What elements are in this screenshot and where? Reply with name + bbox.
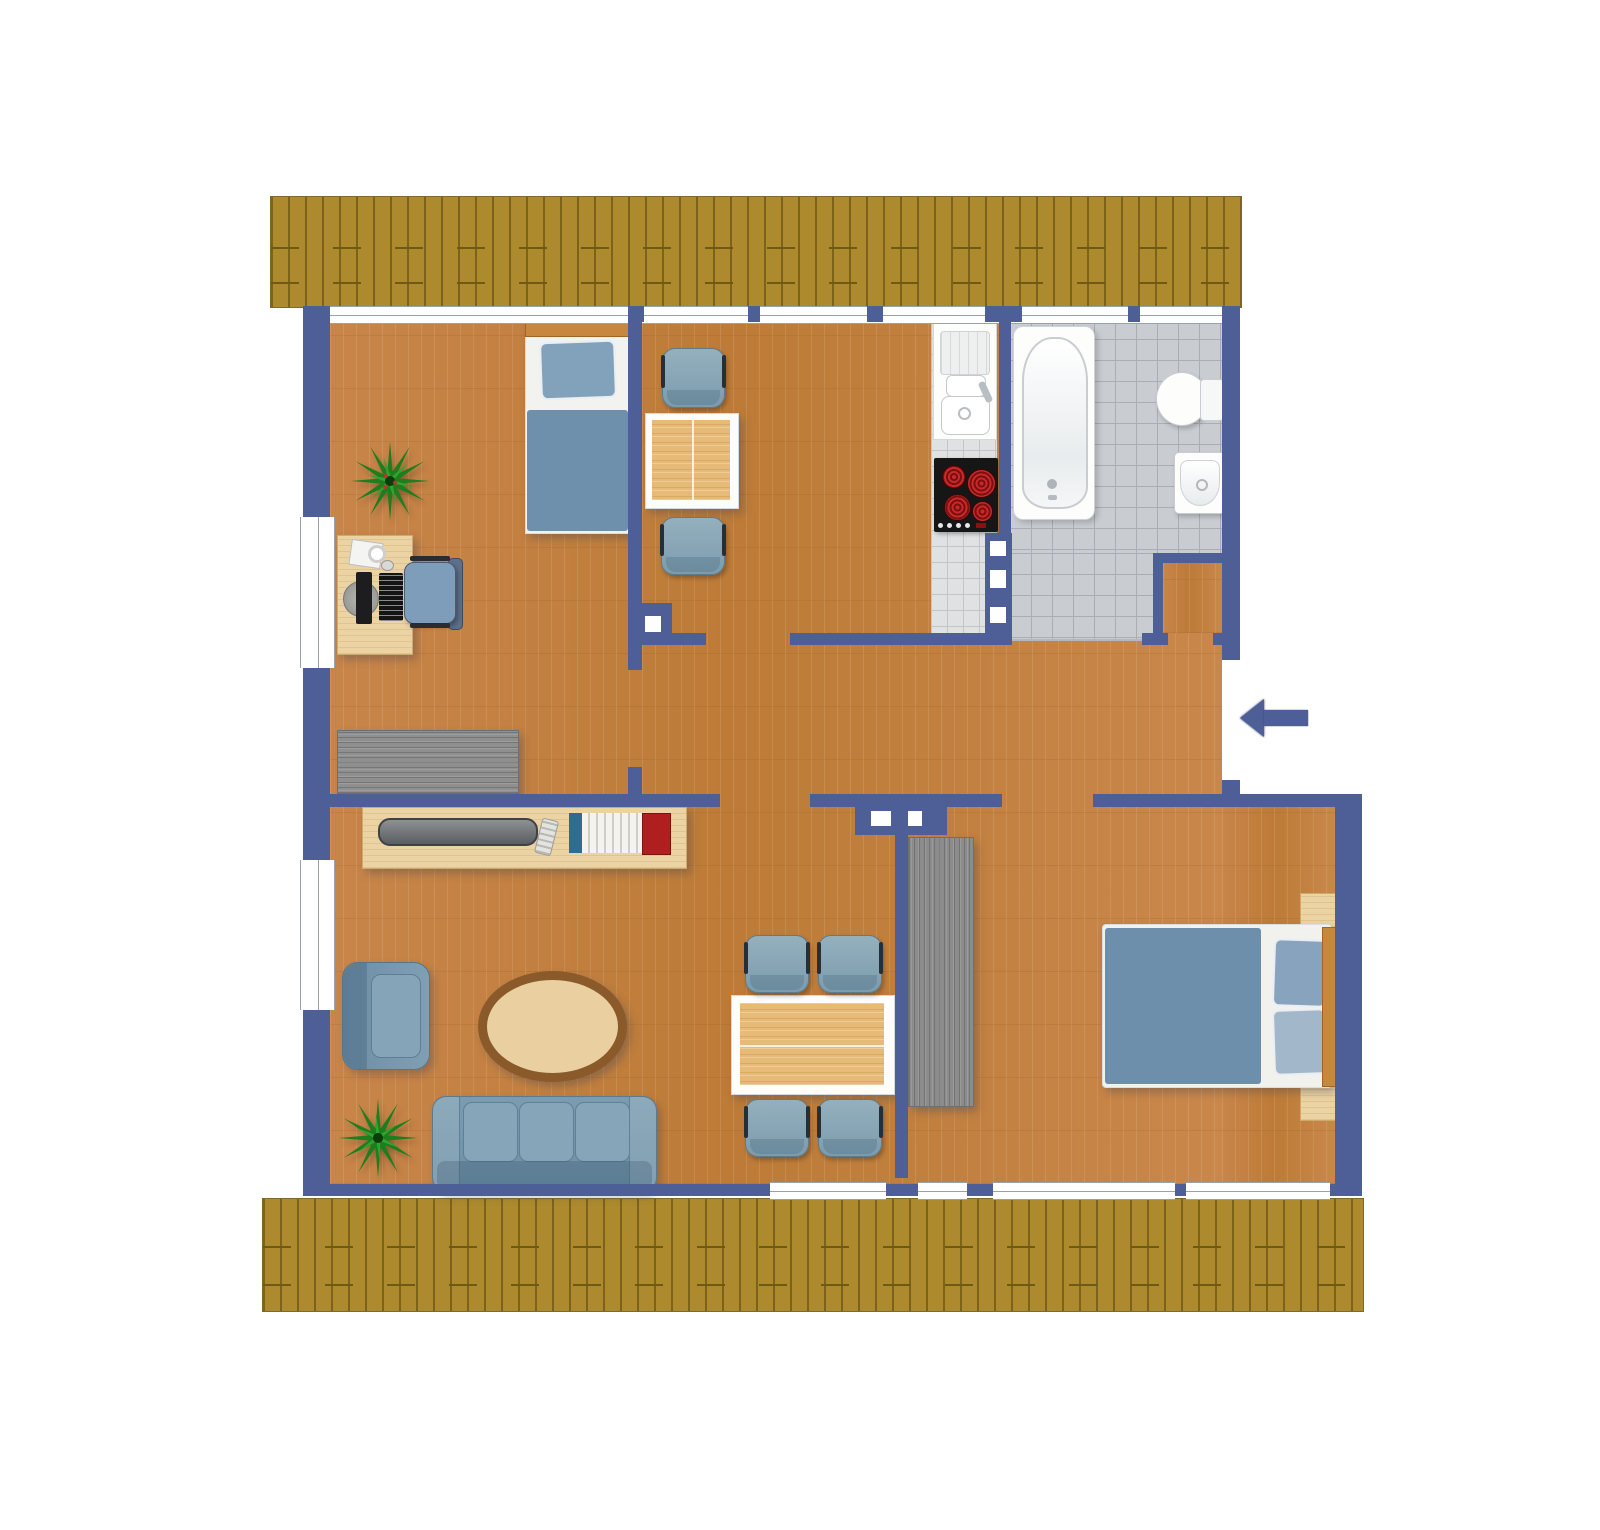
- window: [1186, 1182, 1330, 1200]
- entrance-arrow-icon: [1240, 699, 1264, 737]
- chair: [818, 1099, 882, 1157]
- table-seam: [740, 1045, 884, 1047]
- floor-plan: [0, 0, 1600, 1530]
- keyboard-icon: [379, 573, 403, 621]
- nightstand: [1300, 1086, 1337, 1121]
- armchair-cushion: [371, 974, 421, 1058]
- tv-icon: [378, 818, 538, 846]
- glass-block: [990, 570, 1006, 588]
- washbasin: [1174, 452, 1226, 514]
- chair: [661, 517, 725, 575]
- armchair-back: [343, 963, 367, 1069]
- wall-kitchen-bath: [999, 318, 1011, 533]
- chair: [818, 935, 882, 993]
- bed-headboard: [525, 322, 632, 337]
- breakfast-table: [645, 413, 739, 509]
- bed-pillow: [1272, 938, 1328, 1008]
- glass-block: [871, 811, 891, 826]
- roof-band-top: [270, 196, 1242, 308]
- wall-pillar: [1128, 306, 1140, 322]
- chair: [745, 935, 809, 993]
- armchair: [342, 962, 430, 1070]
- cooktop-knob: [947, 523, 952, 528]
- wall-bottom-pillar: [1175, 1184, 1186, 1196]
- wall-bottom: [303, 1184, 770, 1196]
- single-bed: [525, 322, 632, 534]
- chair: [662, 348, 725, 408]
- office-chair-seat: [404, 562, 456, 624]
- plant-icon: [348, 439, 432, 523]
- roof-dash-row: [263, 1246, 1363, 1248]
- book-row: [582, 813, 642, 853]
- wall-left-outer: [303, 306, 330, 1196]
- kitchen-sink-unit: [933, 322, 997, 440]
- wall-pillar: [748, 306, 760, 322]
- glass-block: [990, 541, 1006, 556]
- wall-pillar: [867, 306, 883, 322]
- floor-closet-niche: [1163, 563, 1222, 633]
- bed-duvet: [527, 410, 628, 531]
- wall-bottom-pillar: [967, 1184, 993, 1196]
- window: [300, 860, 335, 1010]
- table-seam: [692, 420, 694, 500]
- wardrobe: [908, 837, 974, 1107]
- bed-pillow: [539, 340, 617, 401]
- window: [300, 517, 335, 668]
- office-chair-armrest: [410, 556, 450, 561]
- wall-dining-divider: [895, 807, 908, 1178]
- office-chair: [404, 558, 462, 628]
- sideboard: [337, 730, 519, 794]
- window-band-top: [330, 306, 1222, 324]
- floor-bathroom-tiles-ext: [1010, 553, 1153, 641]
- plant-icon: [336, 1095, 420, 1181]
- cooktop-knob: [956, 523, 961, 528]
- sofa-cushion: [519, 1102, 574, 1162]
- washbasin-drain: [1196, 479, 1208, 491]
- bathtub-drain: [1047, 479, 1057, 489]
- sofa: [432, 1096, 657, 1192]
- wall-bottom-pillar: [886, 1184, 918, 1196]
- window: [770, 1182, 886, 1200]
- wall-bedroom-top: [1093, 794, 1336, 807]
- wall-bedroom-right: [1335, 794, 1362, 1184]
- dining-table: [731, 995, 895, 1095]
- roof-dash-row: [271, 282, 1241, 284]
- wall-right-outer-top: [1222, 306, 1240, 660]
- wall-dining-top: [810, 794, 1002, 807]
- monitor-icon: [356, 572, 372, 624]
- tv-bench: [362, 807, 687, 869]
- bathtub-faucet: [1048, 495, 1057, 500]
- burner: [972, 501, 993, 522]
- mouse-icon: [381, 560, 394, 571]
- sink-drain: [958, 407, 971, 420]
- coffee-table: [478, 971, 627, 1082]
- wall-living-top: [330, 794, 720, 807]
- cooktop: [934, 458, 998, 532]
- table-top: [652, 420, 730, 500]
- bed-duvet: [1105, 928, 1261, 1084]
- wall-door-stub: [628, 767, 642, 797]
- wall-niche: [645, 616, 661, 632]
- red-book: [642, 813, 671, 855]
- cooktop-display: [976, 523, 986, 528]
- wall-bottom-corner: [1330, 1184, 1362, 1196]
- computer-desk: [337, 535, 413, 655]
- burner: [967, 469, 996, 498]
- wall-hall-top-a: [628, 633, 706, 645]
- entrance-arrow-shaft: [1264, 710, 1308, 726]
- table-top: [740, 1003, 884, 1085]
- sofa-cushion: [463, 1102, 518, 1162]
- roof-dash-row: [271, 247, 1241, 249]
- wall-closet-left: [1153, 563, 1163, 633]
- glass-block: [990, 607, 1006, 623]
- bathtub: [1013, 326, 1095, 520]
- wall-hall-top-b: [790, 633, 1012, 645]
- sink-drainboard: [940, 331, 990, 375]
- cooktop-knob: [965, 523, 970, 528]
- burner: [942, 465, 966, 489]
- burner: [944, 494, 971, 521]
- cooktop-knob: [938, 523, 943, 528]
- roof-dash-row: [263, 1284, 1363, 1286]
- sofa-cushion: [575, 1102, 630, 1162]
- roof-band-bottom: [262, 1198, 1364, 1312]
- nightstand: [1300, 893, 1337, 928]
- office-chair-armrest: [410, 623, 450, 628]
- bed-pillow: [1272, 1008, 1328, 1076]
- toilet-tank: [1200, 379, 1224, 421]
- bookend: [569, 813, 582, 853]
- remote-control-icon: [534, 817, 559, 856]
- window: [918, 1182, 967, 1200]
- window: [993, 1182, 1175, 1200]
- wall-closet-stub: [1142, 633, 1168, 645]
- chair: [745, 1099, 809, 1157]
- double-bed: [1102, 924, 1332, 1088]
